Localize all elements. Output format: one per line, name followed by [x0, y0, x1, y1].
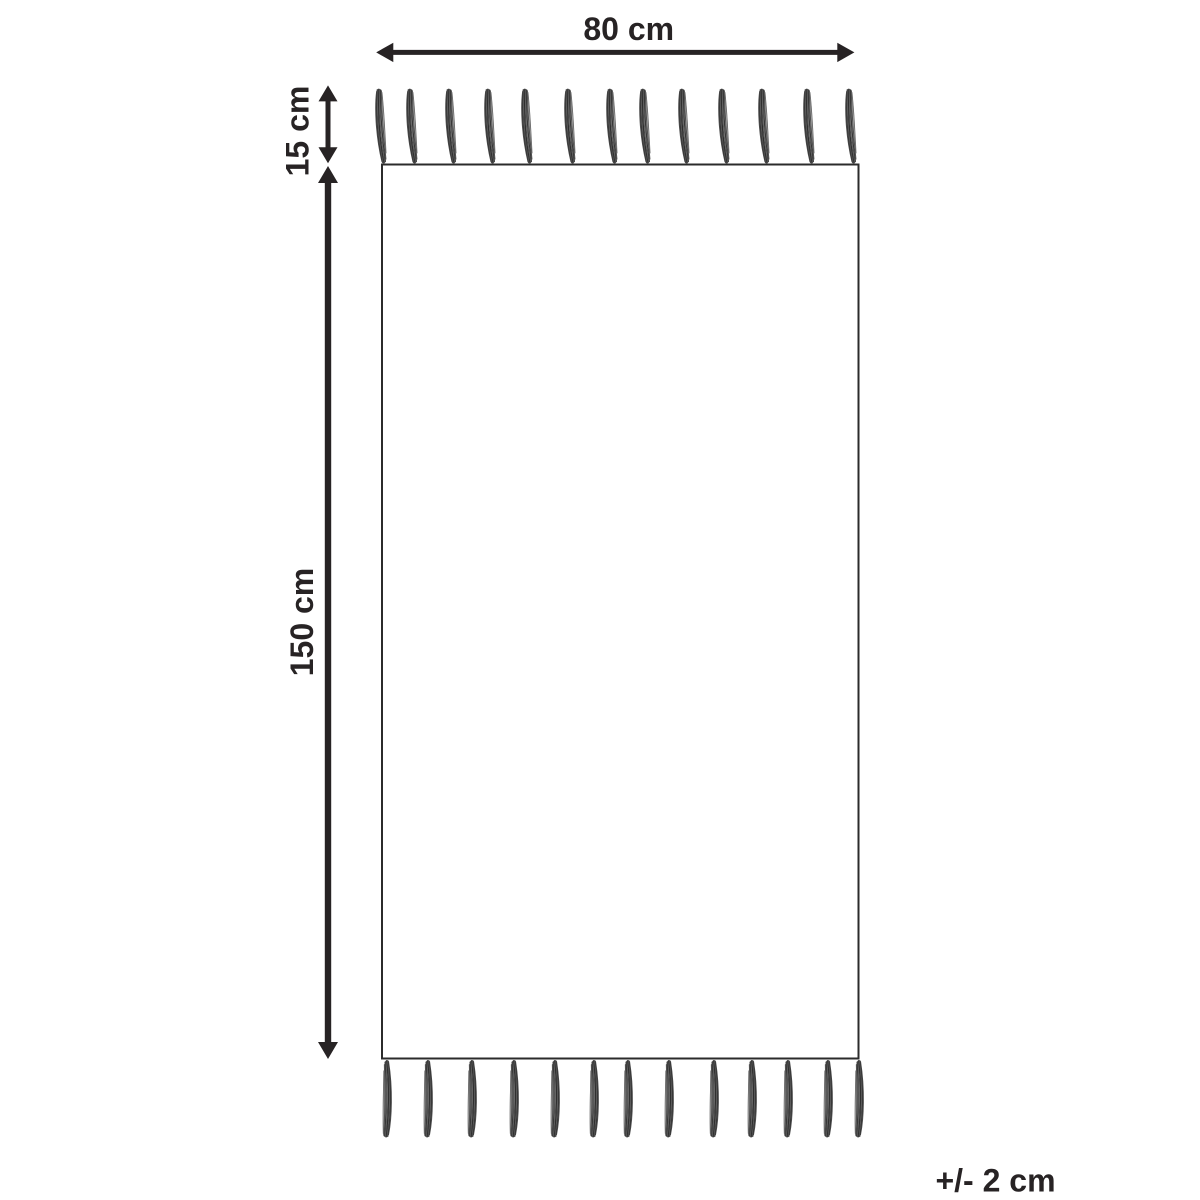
svg-text:150 cm: 150 cm	[284, 568, 320, 677]
svg-text:15 cm: 15 cm	[280, 86, 316, 177]
svg-text:+/- 2 cm: +/- 2 cm	[935, 1163, 1055, 1199]
svg-text:80 cm: 80 cm	[583, 11, 674, 47]
